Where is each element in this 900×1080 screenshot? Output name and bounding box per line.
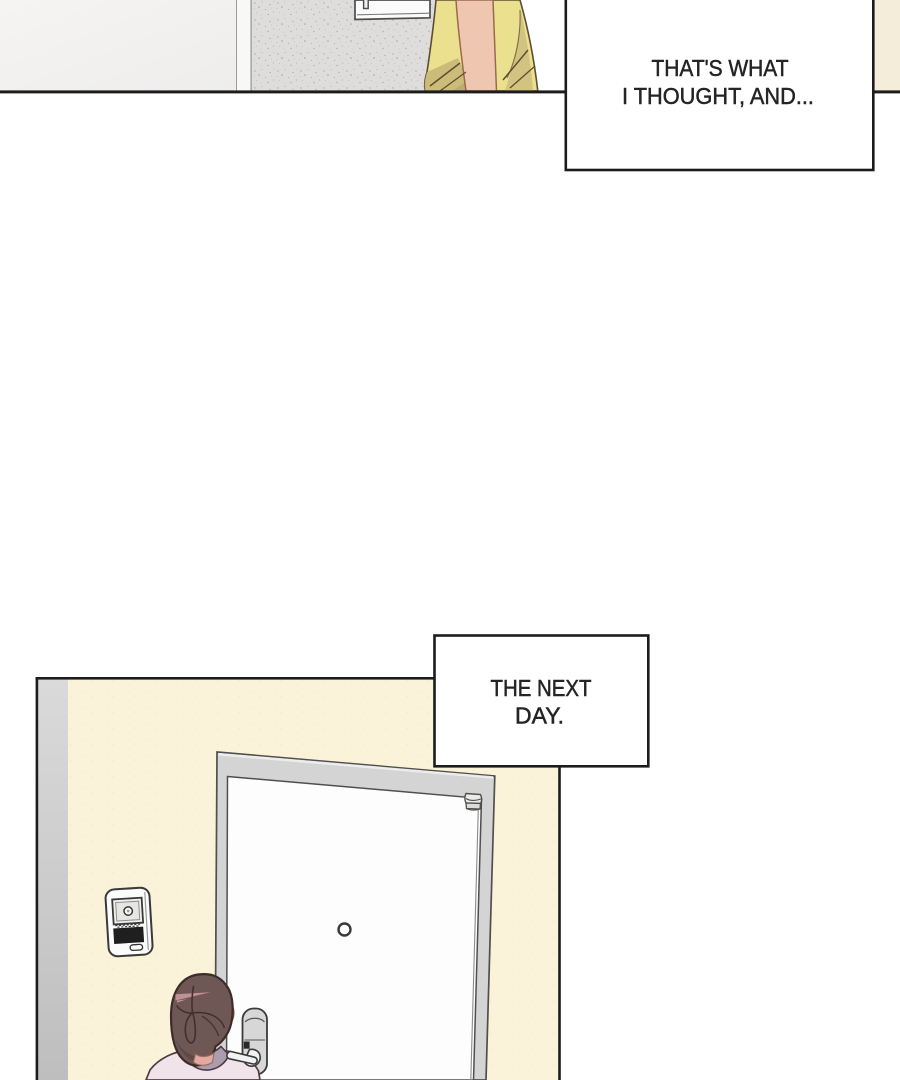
svg-text:THAT'S WHAT: THAT'S WHAT xyxy=(652,55,789,81)
svg-text:THE NEXT: THE NEXT xyxy=(491,675,592,701)
svg-text:I THOUGHT, AND...: I THOUGHT, AND... xyxy=(622,83,814,109)
svg-text:DAY.: DAY. xyxy=(515,703,564,729)
